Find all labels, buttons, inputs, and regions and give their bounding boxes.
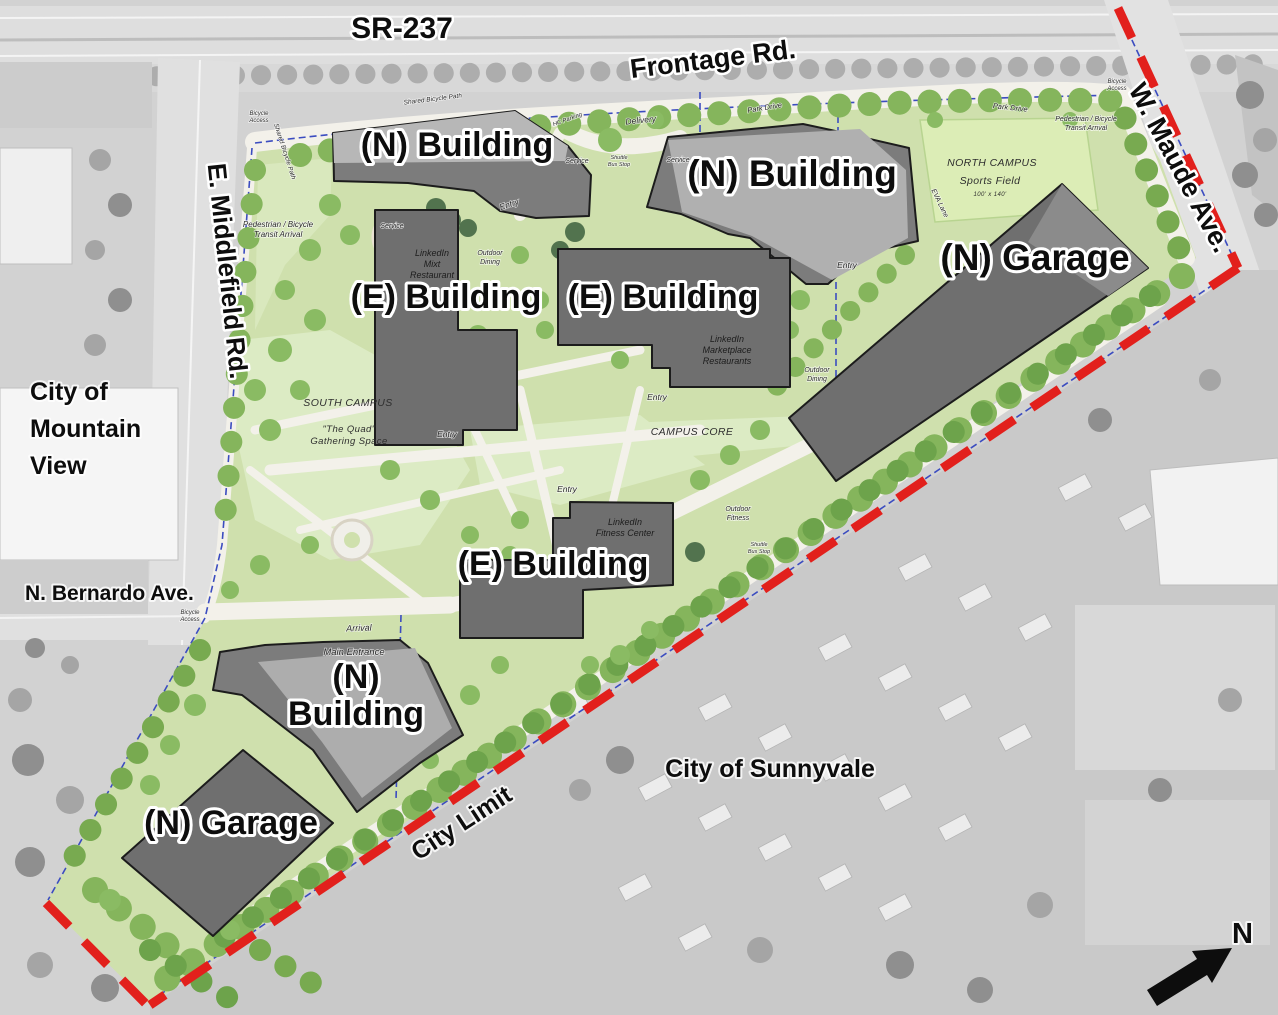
label-outdoor-dining-1a: Outdoor [477,250,503,257]
label-n-building-3b: Building [288,695,424,733]
label-shuttle-1b: Bus Stop [608,162,630,168]
arrival-road [205,605,450,612]
label-bike-access-2a: Bicycle [1107,79,1127,85]
label-outdoor-fitness-b: Fitness [727,515,750,522]
label-mixt-1: LinkedIn [415,248,449,258]
label-e-building-3: (E) Building [458,545,649,583]
label-ped-transit-2b: Transit Arrival [1065,125,1108,132]
label-north: N [1232,918,1253,950]
label-mountain-view-1: City of [30,378,108,406]
label-n-garage-right: (N) Garage [940,237,1129,278]
label-shuttle-1a: Shuttle [610,155,627,161]
label-sports-field: Sports Field [960,175,1022,187]
label-bike-access-3a: Bicycle [180,610,200,616]
label-ped-transit-1b: Transit Arrival [254,230,303,239]
label-mixt-3: Restaurant [410,270,455,280]
label-mixt-2: Mixt [424,259,441,269]
label-n-building-2: (N) Building [687,153,897,194]
label-arrival: Arrival [345,623,373,634]
label-bike-access-1a: Bicycle [249,111,269,117]
label-n-building-1: (N) Building [361,126,554,164]
label-marketplace-2: Marketplace [702,345,751,355]
label-bernardo-ave: N. Bernardo Ave. [25,582,194,605]
label-sr237: SR-237 [351,12,453,45]
label-mountain-view-3: View [30,452,87,480]
label-outdoor-dining-2a: Outdoor [804,367,830,374]
label-bike-access-1b: Access [248,118,268,124]
label-marketplace-3: Restaurants [703,356,752,366]
label-ped-transit-1a: Pedestrian / Bicycle [243,220,314,229]
label-south-campus: SOUTH CAMPUS [303,397,392,409]
label-shuttle-2b: Bus Stop [748,549,770,555]
label-fitness-2: Fitness Center [596,528,656,538]
label-outdoor-fitness-a: Outdoor [725,506,751,513]
label-service-2: Service [565,158,588,165]
map-canvas: (N) Building (N) Building (N) Garage (E)… [0,0,1278,1015]
site-plan-map: (N) Building (N) Building (N) Garage (E)… [0,0,1278,1015]
label-n-garage-bottom: (N) Garage [144,804,318,842]
label-bike-access-2b: Access [1106,86,1126,92]
mountain-view-building [0,388,178,560]
label-sunnyvale: City of Sunnyvale [665,755,875,783]
label-bike-access-3b: Access [179,617,199,623]
label-service-1: Service [380,223,403,230]
label-e-building-1: (E) Building [351,278,542,316]
label-n-building-3a: (N) [332,658,379,696]
label-entry-2: Entry [437,429,458,439]
label-main-entrance: Main Entrance [323,647,384,658]
label-quad-2: Gathering Space [310,436,387,447]
label-ped-transit-2a: Pedestrian / Bicycle [1055,116,1117,123]
label-outdoor-dining-1b: Dining [480,259,500,266]
sunnyvale-building [1150,458,1278,585]
label-field-dim: 100' x 140' [973,192,1007,198]
label-outdoor-dining-2b: Dining [807,376,827,383]
label-entry-3: Entry [647,392,668,402]
label-shuttle-2a: Shuttle [750,542,767,548]
label-quad-1: "The Quad" [323,424,376,435]
label-entry-4: Entry [557,484,578,494]
label-north-campus: NORTH CAMPUS [947,157,1037,169]
label-e-building-2: (E) Building [568,278,759,316]
label-campus-core: CAMPUS CORE [651,426,734,438]
label-entry-5: Entry [837,260,858,270]
label-service-3: Service [666,157,689,164]
label-marketplace-1: LinkedIn [710,334,744,344]
label-mountain-view-2: Mountain [30,415,141,443]
label-fitness-1: LinkedIn [608,517,642,527]
